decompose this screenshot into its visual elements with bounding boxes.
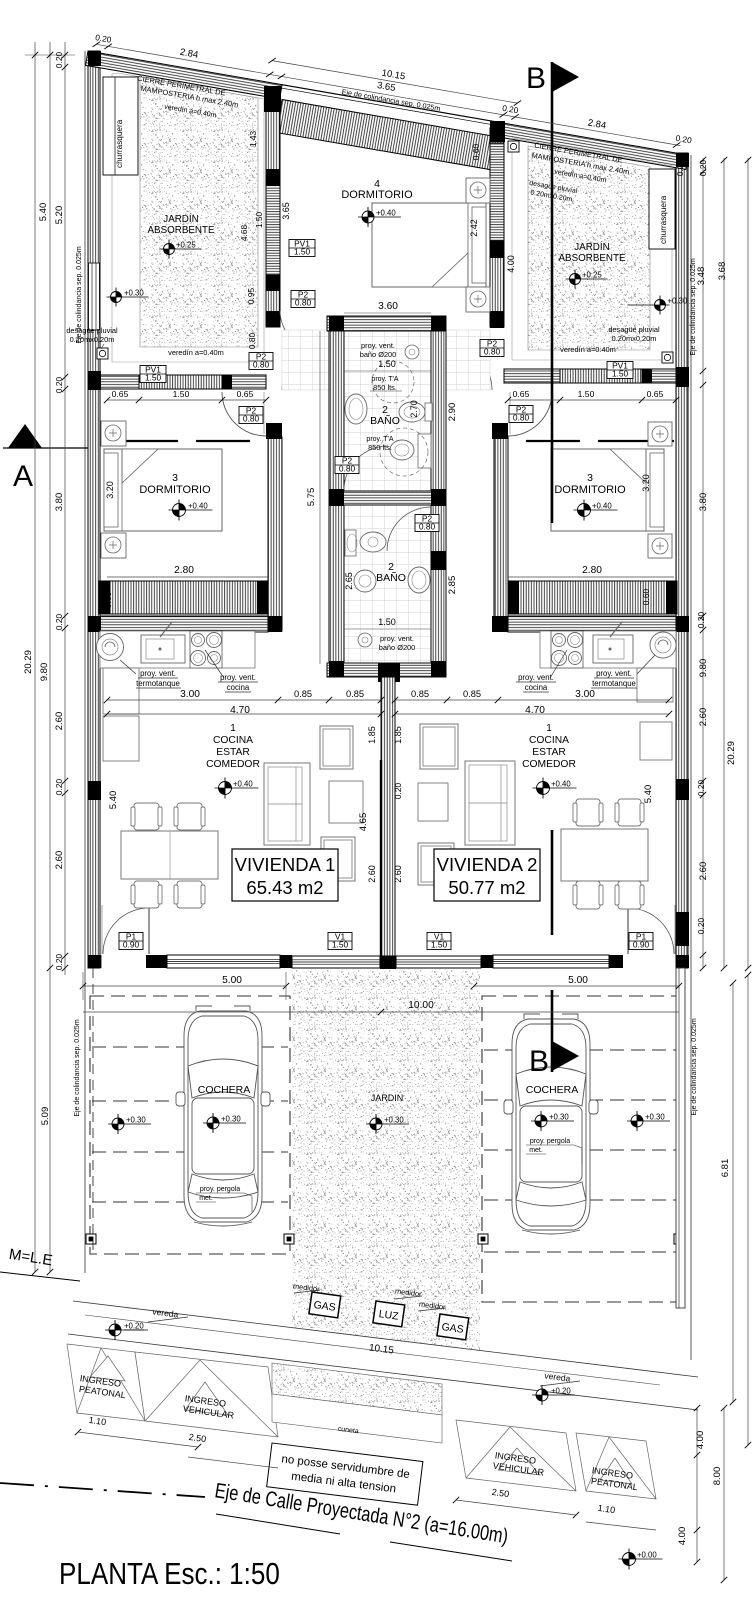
svg-text:+0.40: +0.40 [551, 780, 571, 789]
svg-text:4.00: 4.00 [506, 255, 516, 273]
svg-text:+0.25: +0.25 [176, 241, 196, 250]
svg-text:JARDÍN: JARDÍN [163, 214, 198, 225]
svg-text:5.40: 5.40 [643, 785, 654, 804]
svg-text:VIVIENDA 1: VIVIENDA 1 [235, 854, 336, 875]
svg-text:3.20: 3.20 [105, 481, 115, 499]
svg-text:3: 3 [172, 472, 178, 484]
svg-text:1.43: 1.43 [248, 131, 258, 148]
svg-text:proy. vent.: proy. vent. [596, 669, 632, 678]
svg-text:5.00: 5.00 [222, 975, 242, 986]
svg-text:proy. T'A: proy. T'A [366, 436, 393, 443]
svg-text:proy. pergola: proy. pergola [530, 1138, 570, 1145]
svg-text:1.50: 1.50 [378, 617, 396, 627]
svg-text:50.77 m2: 50.77 m2 [448, 877, 525, 898]
svg-text:baño Ø200: baño Ø200 [379, 643, 416, 652]
svg-text:B: B [526, 62, 546, 95]
svg-text:3.00: 3.00 [575, 689, 595, 700]
svg-text:COMEDOR: COMEDOR [522, 759, 576, 770]
svg-text:3.65: 3.65 [281, 202, 291, 220]
svg-text:B: B [529, 1045, 549, 1078]
svg-text:2.80: 2.80 [582, 565, 602, 576]
svg-text:3.68: 3.68 [717, 262, 728, 281]
svg-text:2.65: 2.65 [344, 572, 354, 590]
svg-text:+0.30: +0.30 [384, 1116, 404, 1125]
svg-text:3.60: 3.60 [378, 301, 398, 312]
svg-text:0.80: 0.80 [253, 360, 270, 370]
svg-text:proy. vent.: proy. vent. [518, 673, 554, 682]
svg-text:+0.40: +0.40 [188, 502, 208, 511]
svg-text:3.00: 3.00 [180, 689, 200, 700]
svg-text:+0.30: +0.30 [124, 289, 144, 298]
svg-text:0.80: 0.80 [419, 522, 436, 532]
svg-text:20.29: 20.29 [726, 741, 737, 765]
svg-text:ESTAR: ESTAR [532, 747, 566, 758]
svg-text:PLANTA Esc.: 1:50: PLANTA Esc.: 1:50 [59, 1557, 280, 1592]
svg-text:DORMITORIO: DORMITORIO [139, 484, 211, 496]
svg-text:0.20: 0.20 [675, 160, 685, 177]
svg-text:veredín a=0.40m: veredín a=0.40m [168, 348, 224, 357]
svg-text:65.43 m2: 65.43 m2 [246, 877, 323, 898]
svg-text:2.90: 2.90 [447, 403, 458, 422]
svg-text:+0.40: +0.40 [233, 780, 253, 789]
svg-text:1.50: 1.50 [431, 940, 448, 950]
svg-text:0.85: 0.85 [294, 689, 312, 699]
svg-text:3: 3 [587, 472, 593, 484]
svg-text:8.00: 8.00 [712, 1467, 723, 1486]
svg-text:Eje de colindancia sep. 0.025m: Eje de colindancia sep. 0.025m [76, 246, 83, 343]
svg-text:3.80: 3.80 [54, 493, 65, 512]
svg-text:baño Ø200: baño Ø200 [360, 350, 397, 359]
svg-text:1.85: 1.85 [393, 726, 403, 744]
svg-text:9.80: 9.80 [698, 659, 709, 678]
svg-text:0.60: 0.60 [103, 592, 113, 609]
svg-text:0.60: 0.60 [641, 589, 651, 606]
svg-text:2.60: 2.60 [54, 851, 65, 870]
svg-text:1.50: 1.50 [145, 373, 162, 383]
svg-text:+0.30: +0.30 [126, 1116, 146, 1125]
svg-text:A: A [13, 460, 33, 493]
svg-text:Eje de colindancia sep. 0.025m: Eje de colindancia sep. 0.025m [690, 258, 697, 355]
svg-text:4.00: 4.00 [695, 1431, 706, 1450]
svg-text:desagüe pluvial: desagüe pluvial [608, 325, 660, 334]
svg-text:churrasquera: churrasquera [115, 119, 124, 168]
svg-text:0.20: 0.20 [393, 783, 403, 800]
svg-text:0.65: 0.65 [647, 389, 664, 399]
svg-text:BAÑO: BAÑO [376, 571, 406, 584]
svg-text:COMEDOR: COMEDOR [206, 759, 260, 770]
svg-text:+0.30: +0.30 [645, 1113, 665, 1122]
svg-text:0.80: 0.80 [513, 413, 530, 423]
svg-text:1.50: 1.50 [612, 369, 629, 379]
svg-text:+0.30: +0.30 [668, 297, 688, 306]
svg-text:+0.40: +0.40 [592, 502, 612, 511]
svg-text:2.42: 2.42 [469, 219, 479, 237]
svg-text:termotanque: termotanque [136, 679, 180, 688]
svg-text:met.: met. [529, 1147, 543, 1154]
svg-text:5.20: 5.20 [54, 206, 65, 225]
svg-text:6.81: 6.81 [720, 1159, 731, 1178]
svg-text:0.85: 0.85 [411, 689, 429, 699]
svg-text:1.50: 1.50 [173, 389, 190, 399]
svg-text:0.80: 0.80 [243, 414, 260, 424]
svg-text:VIVIENDA 2: VIVIENDA 2 [437, 854, 538, 875]
svg-text:0.20: 0.20 [696, 918, 706, 935]
svg-text:churrasquera: churrasquera [659, 195, 668, 244]
svg-text:0.80: 0.80 [339, 464, 356, 474]
svg-text:1: 1 [230, 723, 236, 734]
svg-text:2.60: 2.60 [54, 712, 65, 731]
svg-text:0.20: 0.20 [54, 954, 64, 971]
svg-text:2.60: 2.60 [698, 708, 709, 727]
svg-text:0.85: 0.85 [463, 689, 481, 699]
svg-text:+0.20: +0.20 [551, 1387, 571, 1396]
svg-text:0.80: 0.80 [295, 298, 312, 308]
svg-text:4.00: 4.00 [677, 1527, 688, 1546]
svg-text:proy. T'A: proy. T'A [371, 376, 398, 383]
svg-text:0.95: 0.95 [246, 288, 256, 305]
svg-text:Eje de colindancia sep. 0.025m: Eje de colindancia sep. 0.025m [74, 1019, 81, 1116]
svg-text:20.29: 20.29 [23, 650, 34, 674]
svg-text:1.50: 1.50 [294, 247, 311, 257]
svg-text:0.90: 0.90 [123, 940, 140, 950]
svg-text:0.20: 0.20 [54, 377, 64, 394]
svg-text:ABSORBENTE: ABSORBENTE [148, 225, 215, 236]
svg-text:4.65: 4.65 [358, 813, 369, 832]
svg-text:0.20: 0.20 [696, 612, 706, 629]
svg-text:9.80: 9.80 [39, 663, 50, 682]
svg-text:+0.30: +0.30 [549, 1113, 569, 1122]
svg-text:COCINA: COCINA [529, 735, 569, 746]
svg-text:0.20: 0.20 [54, 52, 64, 69]
svg-text:cocina: cocina [227, 683, 250, 692]
svg-text:0.20mx0.20m: 0.20mx0.20m [612, 334, 657, 343]
svg-text:desagüe pluvial: desagüe pluvial [66, 326, 118, 335]
svg-text:0.65: 0.65 [513, 389, 530, 399]
svg-text:5.40: 5.40 [108, 791, 119, 810]
svg-text:1.50: 1.50 [378, 359, 396, 369]
svg-text:DORMITORIO: DORMITORIO [554, 484, 626, 496]
svg-text:0.65: 0.65 [112, 389, 129, 399]
svg-text:0.85: 0.85 [346, 689, 364, 699]
svg-text:termotanque: termotanque [592, 679, 636, 688]
svg-text:JARDIN: JARDIN [371, 1093, 404, 1103]
svg-text:1.50: 1.50 [332, 940, 349, 950]
svg-text:0.80: 0.80 [247, 333, 257, 350]
svg-text:BAÑO: BAÑO [370, 414, 400, 427]
svg-text:1.85: 1.85 [367, 726, 377, 744]
svg-text:2.70: 2.70 [409, 400, 419, 418]
svg-text:2.60: 2.60 [393, 865, 403, 883]
svg-text:+0.00: +0.00 [637, 1551, 657, 1560]
svg-text:proy. pergola: proy. pergola [200, 1186, 240, 1193]
svg-text:3.80: 3.80 [698, 493, 709, 512]
svg-text:0.65: 0.65 [237, 389, 254, 399]
svg-text:0.60: 0.60 [471, 144, 481, 161]
svg-text:3.20: 3.20 [641, 474, 651, 492]
svg-text:0.20: 0.20 [54, 614, 64, 631]
svg-text:JARDÍN: JARDÍN [574, 242, 609, 253]
svg-text:5.00: 5.00 [568, 975, 588, 986]
svg-text:5.09: 5.09 [40, 1107, 51, 1126]
svg-text:+0.40: +0.40 [376, 209, 396, 218]
svg-text:Eje de colindancia sep. 0.025m: Eje de colindancia sep. 0.025m [691, 1018, 698, 1115]
svg-text:ESTAR: ESTAR [216, 747, 250, 758]
svg-text:COCHERA: COCHERA [526, 1084, 579, 1096]
svg-text:ABSORBENTE: ABSORBENTE [559, 253, 626, 264]
svg-text:2.85: 2.85 [447, 576, 458, 595]
svg-text:0.90: 0.90 [633, 940, 650, 950]
svg-text:met.: met. [199, 1195, 213, 1202]
svg-text:cocina: cocina [525, 683, 548, 692]
svg-text:0.20: 0.20 [696, 780, 706, 797]
svg-text:DORMITORIO: DORMITORIO [341, 189, 413, 201]
svg-text:COCINA: COCINA [213, 735, 253, 746]
svg-text:+0.30: +0.30 [221, 1115, 241, 1124]
svg-text:2.60: 2.60 [698, 862, 709, 881]
svg-text:proy. vent.: proy. vent. [140, 669, 176, 678]
svg-text:proy. vent.: proy. vent. [361, 341, 395, 350]
svg-text:10.00: 10.00 [408, 1000, 434, 1011]
svg-text:5.75: 5.75 [306, 488, 317, 507]
svg-text:4.70: 4.70 [525, 705, 545, 716]
svg-text:+0.20: +0.20 [124, 1322, 144, 1331]
svg-text:1.50: 1.50 [578, 389, 595, 399]
svg-text:1.50: 1.50 [254, 212, 264, 229]
svg-text:4.68: 4.68 [239, 225, 249, 242]
svg-text:0.20: 0.20 [698, 160, 708, 177]
svg-text:4.70: 4.70 [230, 705, 250, 716]
svg-text:proy. vent.: proy. vent. [380, 634, 414, 643]
svg-text:850 lts.: 850 lts. [368, 443, 392, 452]
svg-text:veredín a=0.40m: veredín a=0.40m [560, 345, 616, 354]
svg-text:850 lts.: 850 lts. [373, 383, 397, 392]
svg-text:2.80: 2.80 [174, 565, 194, 576]
svg-text:3.48: 3.48 [696, 267, 707, 286]
svg-text:2.60: 2.60 [367, 865, 377, 883]
svg-text:COCHERA: COCHERA [198, 1084, 251, 1096]
svg-text:+0.25: +0.25 [582, 271, 602, 280]
svg-text:5.40: 5.40 [38, 203, 49, 222]
svg-text:1: 1 [546, 723, 552, 734]
svg-text:0.20: 0.20 [54, 779, 64, 796]
svg-text:proy. vent.: proy. vent. [220, 673, 256, 682]
svg-text:0.80: 0.80 [484, 347, 501, 357]
